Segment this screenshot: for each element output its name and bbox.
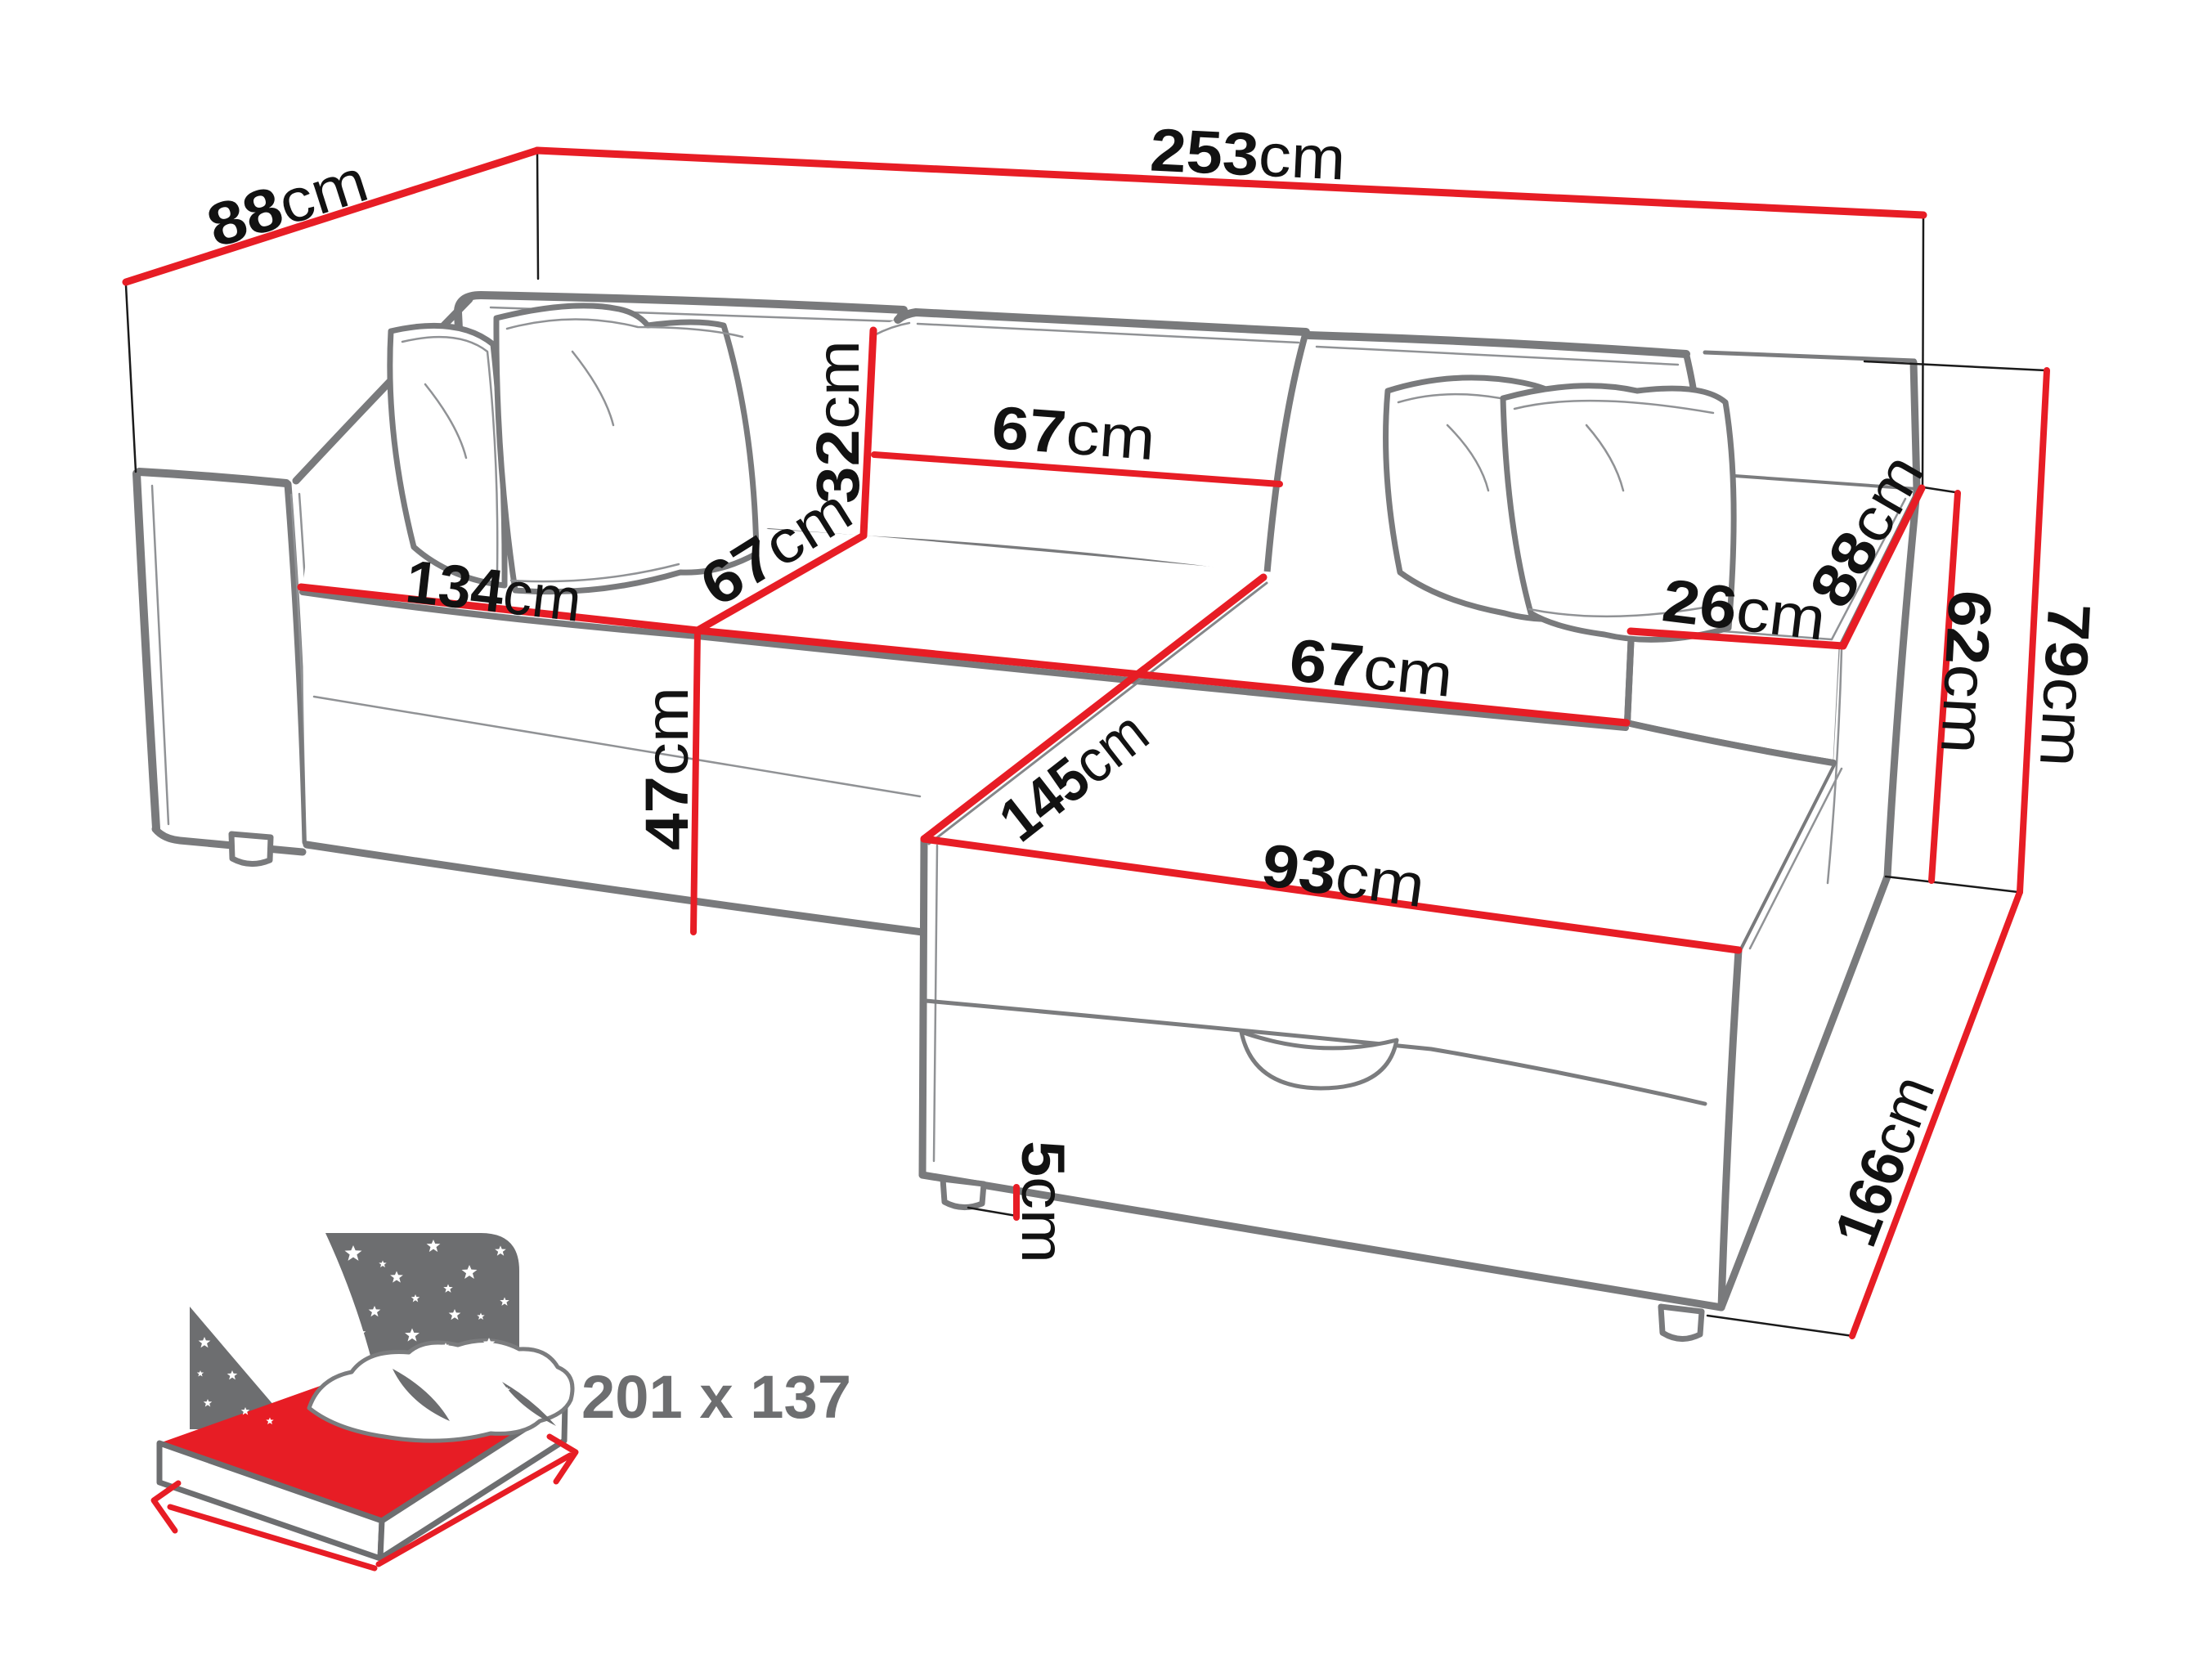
- svg-text:67cm: 67cm: [989, 393, 1158, 473]
- svg-text:5cm: 5cm: [1009, 1141, 1077, 1263]
- svg-text:47cm: 47cm: [633, 687, 701, 850]
- svg-text:79cm: 79cm: [2027, 602, 2103, 769]
- svg-text:32cm: 32cm: [804, 340, 872, 504]
- svg-text:201 x 137: 201 x 137: [581, 1363, 851, 1431]
- svg-text:253cm: 253cm: [1149, 115, 1348, 192]
- svg-text:62cm: 62cm: [1928, 589, 2004, 756]
